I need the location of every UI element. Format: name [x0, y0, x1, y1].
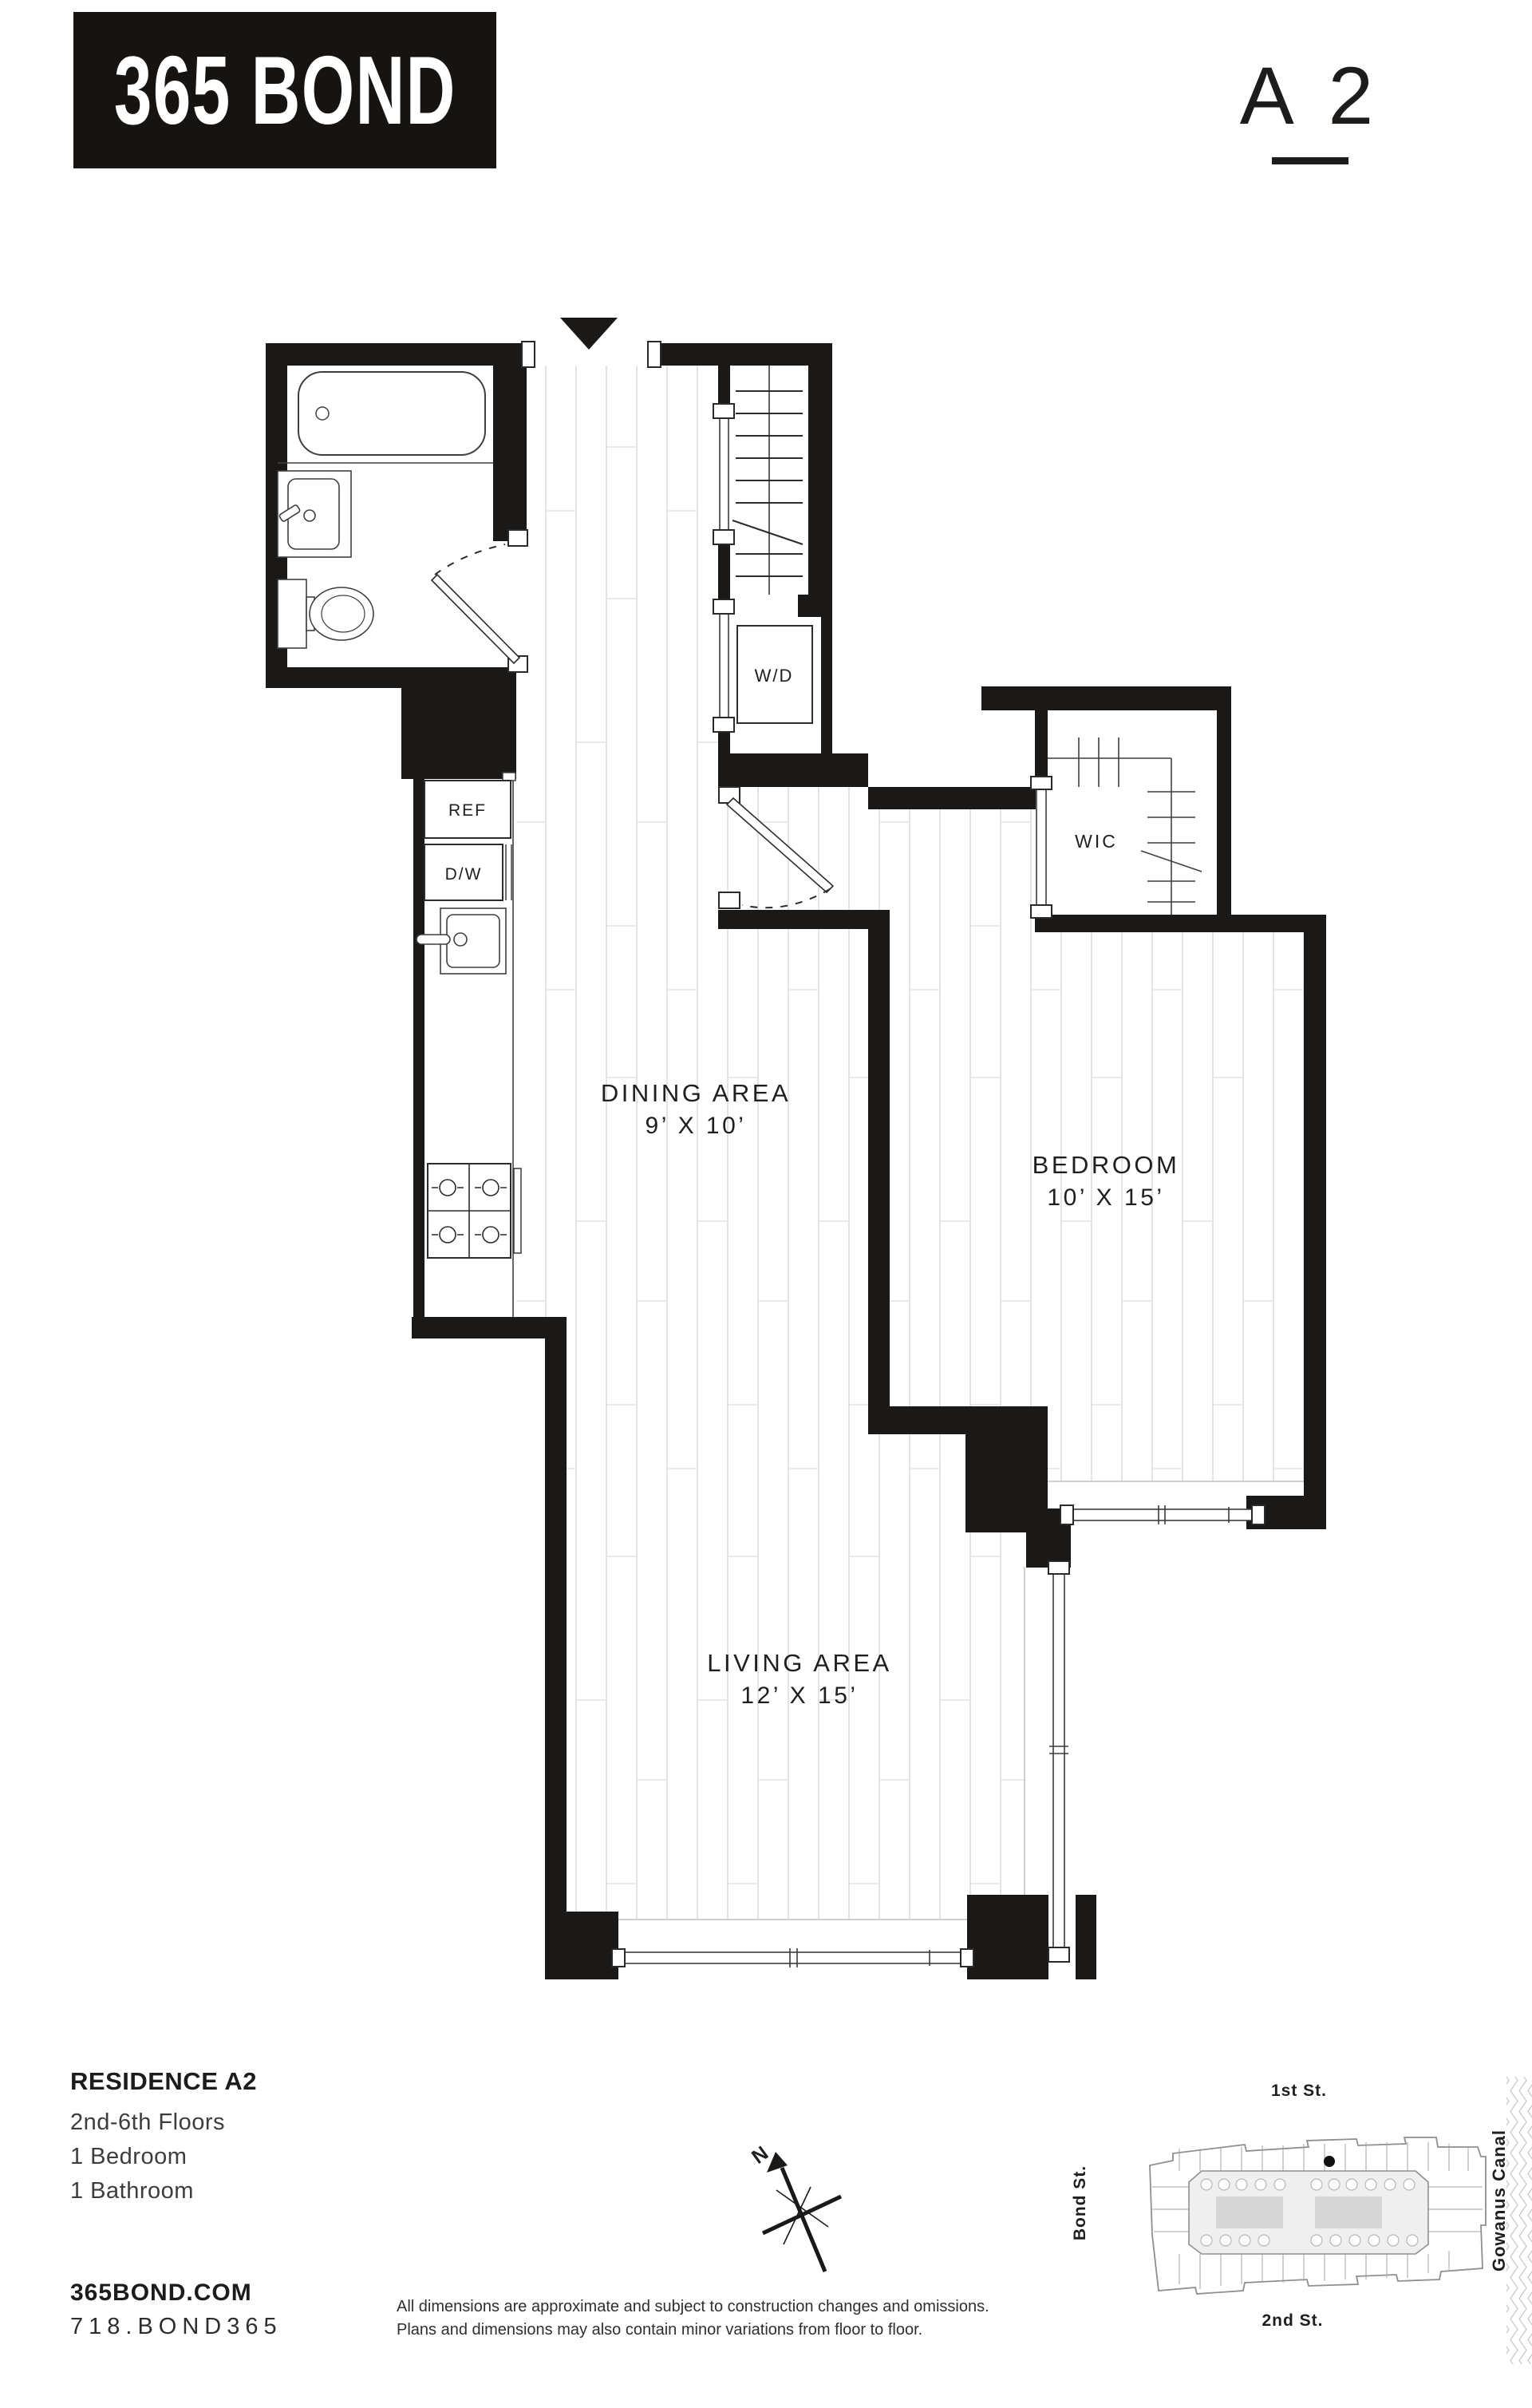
toilet — [278, 579, 373, 648]
wic-label: WIC — [1075, 831, 1118, 852]
residence-title: RESIDENCE A2 — [70, 2067, 257, 2096]
floor-plan-page: 365 BOND A 2 — [0, 0, 1532, 2408]
dining-label: DINING AREA — [601, 1079, 791, 1107]
wd-label: W/D — [755, 666, 794, 686]
floor-plan-canvas: DINING AREA 9’ X 10’ BEDROOM 10’ X 15’ L… — [0, 0, 1532, 2408]
street-south: 2nd St. — [1262, 2311, 1323, 2330]
street-north: 1st St. — [1271, 2082, 1327, 2100]
kitchen-sink — [417, 908, 506, 974]
compass-north-label: N — [748, 2142, 772, 2169]
dw-label: D/W — [445, 865, 483, 884]
bedroom-label: BEDROOM — [1033, 1151, 1180, 1179]
stairs — [732, 366, 803, 595]
living-label: LIVING AREA — [707, 1649, 891, 1677]
site-lawn-1 — [1216, 2196, 1283, 2228]
site-lawn-2 — [1315, 2196, 1382, 2228]
phone-text: 718.BOND365 — [70, 2310, 282, 2343]
disclaimer-line-1: All dimensions are approximate and subje… — [397, 2295, 989, 2319]
residence-bedrooms: 1 Bedroom — [70, 2140, 257, 2174]
residence-info: RESIDENCE A2 2nd-6th Floors 1 Bedroom 1 … — [70, 2067, 257, 2208]
website-text: 365BOND.COM — [70, 2276, 282, 2310]
bathroom-door — [432, 544, 519, 663]
disclaimer-line-2: Plans and dimensions may also contain mi… — [397, 2319, 989, 2342]
residence-floors: 2nd-6th Floors — [70, 2106, 257, 2140]
site-map: 1st St. 2nd St. Bond St. Gowanus Canal — [1071, 2077, 1532, 2364]
living-dims: 12’ X 15’ — [740, 1682, 858, 1709]
vanity-sink — [278, 471, 351, 557]
unit-location-dot — [1324, 2156, 1335, 2167]
street-west: Bond St. — [1071, 2165, 1089, 2240]
bathtub — [298, 372, 485, 455]
dining-dims: 9’ X 10’ — [646, 1113, 747, 1139]
entry-arrow-icon — [560, 318, 618, 350]
range-stove — [428, 1164, 521, 1258]
canal-water-icon — [1506, 2077, 1532, 2364]
street-east: Gowanus Canal — [1489, 2129, 1509, 2272]
bedroom-dims: 10’ X 15’ — [1047, 1184, 1164, 1211]
contact-block: 365BOND.COM 718.BOND365 — [70, 2276, 282, 2343]
wic-closet-rods — [1048, 737, 1202, 915]
disclaimer: All dimensions are approximate and subje… — [397, 2295, 989, 2342]
residence-bathrooms: 1 Bathroom — [70, 2174, 257, 2208]
floor-areas — [516, 366, 1304, 1920]
kitchen — [417, 773, 521, 1317]
ref-label: REF — [448, 801, 487, 820]
compass-icon: N — [748, 2142, 841, 2272]
